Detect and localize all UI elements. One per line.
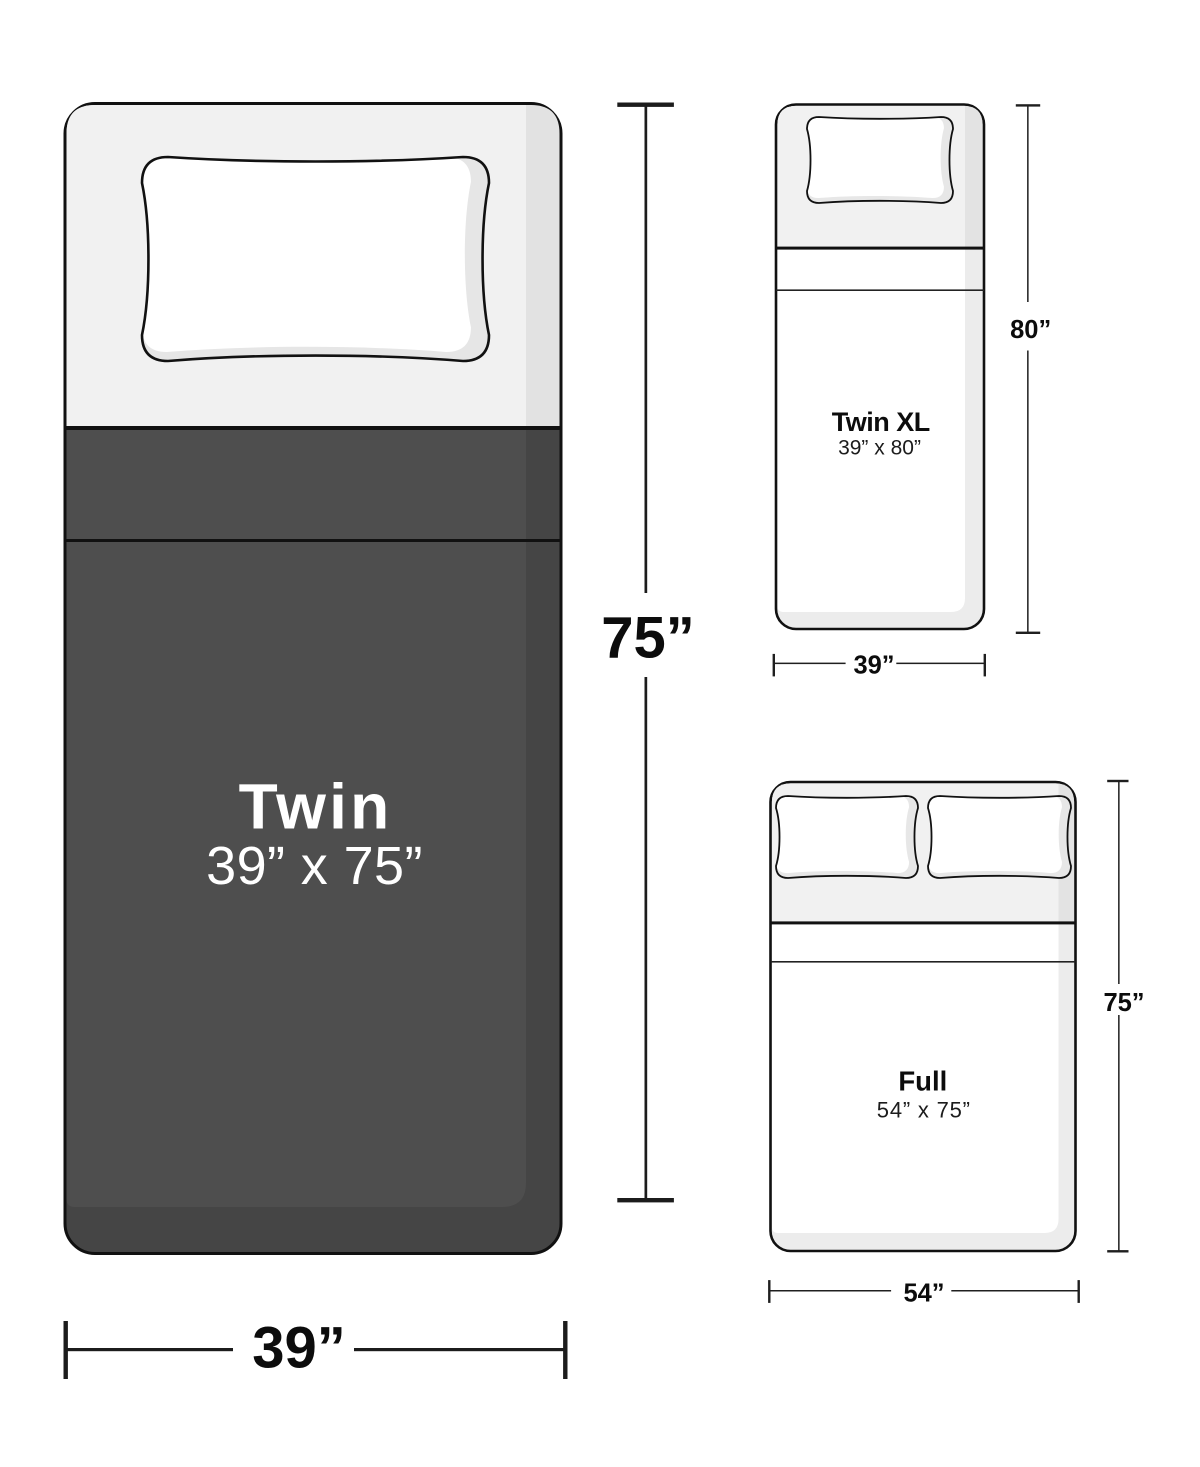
svg-text:Full: Full bbox=[898, 1065, 947, 1096]
svg-text:39” x 80”: 39” x 80” bbox=[838, 436, 921, 459]
svg-text:75”: 75” bbox=[601, 606, 695, 671]
svg-text:39”: 39” bbox=[853, 652, 894, 680]
svg-text:39”: 39” bbox=[252, 1316, 346, 1381]
svg-text:Twin: Twin bbox=[239, 771, 393, 843]
svg-text:54”: 54” bbox=[903, 1280, 944, 1308]
svg-text:39” x 75”: 39” x 75” bbox=[206, 836, 423, 896]
svg-text:80”: 80” bbox=[1010, 316, 1051, 344]
svg-text:54” x 75”: 54” x 75” bbox=[877, 1097, 971, 1122]
svg-text:75”: 75” bbox=[1103, 989, 1144, 1017]
svg-text:Twin XL: Twin XL bbox=[832, 407, 930, 437]
